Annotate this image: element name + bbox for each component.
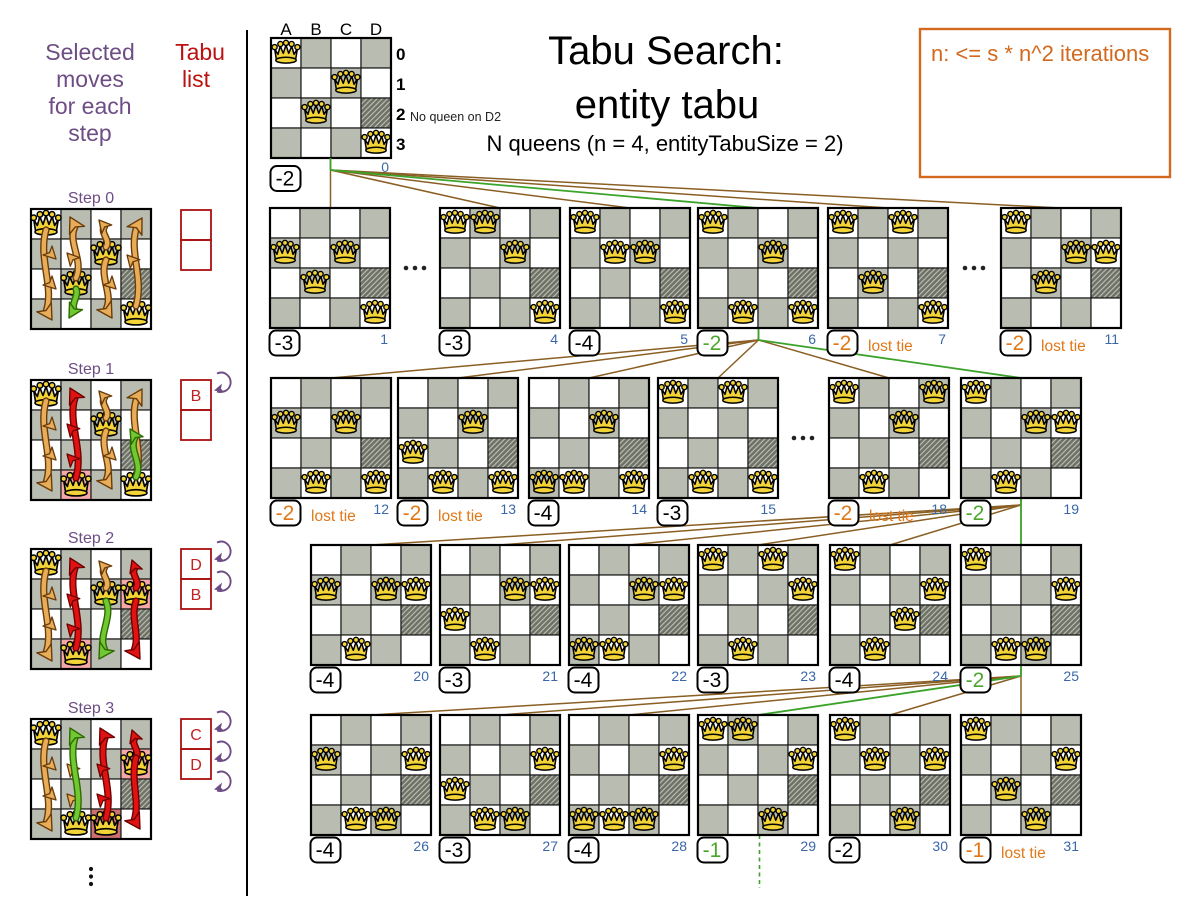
svg-text:-2: -2 <box>403 502 422 525</box>
svg-text:-4: -4 <box>534 502 553 525</box>
svg-text:entity tabu: entity tabu <box>575 83 760 127</box>
svg-text:Step 3: Step 3 <box>68 700 114 717</box>
svg-text:30: 30 <box>932 838 948 854</box>
svg-text:-4: -4 <box>574 669 593 692</box>
svg-text:-2: -2 <box>276 502 295 525</box>
svg-text:-2: -2 <box>834 502 853 525</box>
svg-text:-4: -4 <box>316 669 335 692</box>
svg-text:-2: -2 <box>966 669 985 692</box>
svg-text:4: 4 <box>550 331 558 347</box>
svg-text:-2: -2 <box>1006 332 1025 355</box>
svg-text:29: 29 <box>800 838 816 854</box>
svg-text:22: 22 <box>671 668 687 684</box>
svg-text:B: B <box>191 388 202 405</box>
svg-text:24: 24 <box>932 668 948 684</box>
svg-text:25: 25 <box>1063 668 1079 684</box>
svg-text:15: 15 <box>760 501 776 517</box>
svg-text:-2: -2 <box>835 839 854 862</box>
svg-text:-3: -3 <box>445 332 464 355</box>
svg-text:-3: -3 <box>445 839 464 862</box>
svg-text:-3: -3 <box>445 669 464 692</box>
svg-text:list: list <box>182 66 211 92</box>
svg-text:26: 26 <box>413 838 429 854</box>
svg-text:lost tie: lost tie <box>438 508 483 525</box>
svg-text:19: 19 <box>1063 501 1079 517</box>
svg-text:for each: for each <box>48 93 131 119</box>
svg-text:-4: -4 <box>316 839 335 862</box>
svg-text:Tabu: Tabu <box>175 39 225 65</box>
svg-text:12: 12 <box>373 501 389 517</box>
svg-text:lost tie: lost tie <box>869 508 914 525</box>
svg-text:lost tie: lost tie <box>868 338 913 355</box>
svg-text:n: <= s * n^2 iterations: n: <= s * n^2 iterations <box>931 41 1149 66</box>
svg-text:-3: -3 <box>275 332 294 355</box>
svg-text:27: 27 <box>542 838 558 854</box>
svg-text:-2: -2 <box>833 332 852 355</box>
svg-text:-2: -2 <box>276 168 295 191</box>
svg-text:No queen on D2: No queen on D2 <box>410 110 501 124</box>
svg-text:Selected: Selected <box>45 39 135 65</box>
svg-text:-3: -3 <box>663 502 682 525</box>
svg-text:14: 14 <box>631 501 647 517</box>
svg-text:lost tie: lost tie <box>1041 338 1086 355</box>
svg-text:C: C <box>190 727 202 744</box>
svg-text:A: A <box>280 20 292 39</box>
svg-text:B: B <box>310 20 321 39</box>
svg-text:Step 2: Step 2 <box>68 530 114 547</box>
svg-text:N queens (n = 4, entityTabuSiz: N queens (n = 4, entityTabuSize = 2) <box>486 131 843 156</box>
svg-text:-1: -1 <box>703 839 722 862</box>
svg-text:2: 2 <box>396 105 405 124</box>
svg-text:-4: -4 <box>835 669 854 692</box>
svg-text:-3: -3 <box>703 669 722 692</box>
svg-text:18: 18 <box>931 501 947 517</box>
svg-text:21: 21 <box>542 668 558 684</box>
svg-text:-2: -2 <box>966 502 985 525</box>
svg-text:0: 0 <box>396 45 405 64</box>
svg-text:Step 0: Step 0 <box>68 190 114 207</box>
svg-text:23: 23 <box>800 668 816 684</box>
svg-text:1: 1 <box>380 331 388 347</box>
svg-text:5: 5 <box>680 331 688 347</box>
svg-text:1: 1 <box>396 75 405 94</box>
svg-text:D: D <box>370 20 382 39</box>
svg-text:-1: -1 <box>966 839 985 862</box>
svg-text:D: D <box>190 757 202 774</box>
svg-text:-2: -2 <box>703 332 722 355</box>
svg-text:lost tie: lost tie <box>1001 845 1046 862</box>
svg-text:31: 31 <box>1063 838 1079 854</box>
svg-text:step: step <box>68 120 111 146</box>
svg-text:28: 28 <box>671 838 687 854</box>
svg-text:D: D <box>190 557 202 574</box>
svg-text:11: 11 <box>1104 331 1119 347</box>
svg-text:B: B <box>191 587 202 604</box>
svg-text:7: 7 <box>938 331 946 347</box>
svg-text:moves: moves <box>56 66 124 92</box>
svg-text:20: 20 <box>413 668 429 684</box>
svg-text:Tabu Search:: Tabu Search: <box>548 29 784 73</box>
svg-text:6: 6 <box>808 331 816 347</box>
svg-text:13: 13 <box>500 501 516 517</box>
svg-text:Step 1: Step 1 <box>68 361 114 378</box>
svg-text:-4: -4 <box>575 332 594 355</box>
svg-text:3: 3 <box>396 135 405 154</box>
svg-text:-4: -4 <box>574 839 593 862</box>
svg-text:C: C <box>340 20 352 39</box>
svg-text:lost tie: lost tie <box>311 508 356 525</box>
